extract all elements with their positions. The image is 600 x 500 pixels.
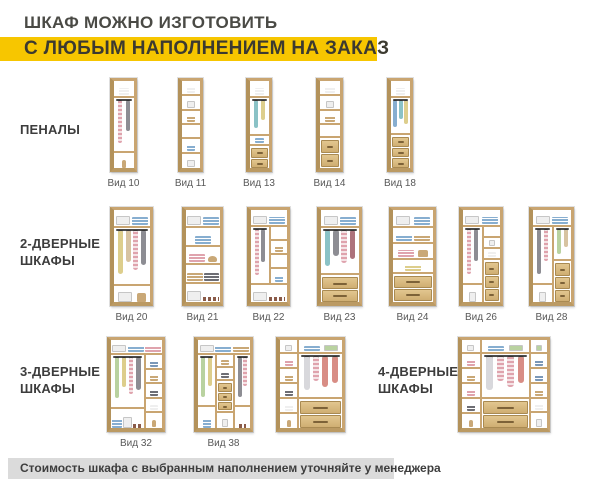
shelf-compartment bbox=[320, 111, 340, 126]
wardrobe-label: Вид 32 bbox=[120, 438, 152, 449]
folded-clothes-icon bbox=[195, 236, 211, 244]
box-icon bbox=[123, 417, 132, 428]
drawer-handle-icon bbox=[257, 163, 263, 165]
drawer bbox=[555, 290, 570, 302]
shelf-compartment bbox=[186, 265, 220, 283]
wardrobe-label: Вид 26 bbox=[465, 312, 497, 323]
shelf-compartment bbox=[280, 414, 297, 428]
wardrobe-interior bbox=[111, 340, 162, 428]
garment-icon bbox=[238, 358, 242, 397]
hanging-section bbox=[321, 229, 359, 275]
shelf-compartment bbox=[280, 369, 297, 384]
box-icon bbox=[467, 345, 474, 351]
folded-clothes-icon bbox=[535, 375, 542, 381]
garment-icon bbox=[333, 231, 338, 256]
wardrobe-diagram bbox=[387, 78, 413, 172]
folded-clothes-icon bbox=[215, 346, 231, 352]
wardrobe-column bbox=[233, 355, 250, 428]
garment-icon bbox=[261, 230, 265, 263]
split-section bbox=[462, 340, 547, 428]
folded-clothes-icon bbox=[221, 360, 228, 365]
hanging-section bbox=[198, 356, 215, 407]
garment-row bbox=[115, 231, 149, 281]
wardrobe-column bbox=[269, 227, 287, 284]
headline: ШКАФ МОЖНО ИЗГОТОВИТЬ bbox=[24, 13, 277, 33]
wardrobe-label: Вид 18 bbox=[384, 178, 416, 189]
wardrobe-column bbox=[462, 340, 480, 428]
shelf-compartment bbox=[186, 247, 220, 265]
shelf-compartment bbox=[271, 241, 287, 255]
folded-clothes-icon bbox=[275, 246, 282, 252]
shelf-compartment bbox=[114, 286, 150, 303]
shelf-compartment bbox=[462, 340, 480, 354]
shelf-compartment bbox=[182, 139, 200, 154]
garment-icon bbox=[332, 357, 338, 383]
box-icon bbox=[200, 345, 214, 352]
bag-icon bbox=[287, 420, 291, 427]
shelf-compartment bbox=[462, 354, 480, 369]
shelf-compartment bbox=[251, 210, 287, 227]
drawer-stack bbox=[320, 138, 340, 168]
wardrobe-label: Вид 20 bbox=[116, 312, 148, 323]
drawer bbox=[394, 276, 432, 288]
shelf-compartment bbox=[484, 249, 501, 260]
drawer-handle-icon bbox=[223, 406, 228, 408]
folded-clothes-icon bbox=[204, 273, 220, 281]
drawer bbox=[251, 148, 268, 157]
shelf-compartment bbox=[484, 227, 501, 238]
drawer bbox=[321, 154, 339, 167]
shelf-compartment bbox=[186, 210, 220, 228]
drawer-handle-icon bbox=[560, 269, 565, 271]
wardrobe-column bbox=[251, 227, 269, 284]
hanging-section bbox=[482, 355, 529, 399]
hanging-section bbox=[533, 228, 552, 285]
wardrobe-diagram bbox=[182, 207, 223, 306]
shelf-compartment bbox=[250, 136, 269, 146]
wardrobe-column bbox=[297, 340, 342, 428]
shelf-compartment bbox=[531, 340, 547, 354]
box-icon bbox=[187, 291, 201, 301]
hanging-section bbox=[251, 228, 269, 285]
hat-icon bbox=[208, 256, 217, 262]
folded-clothes-icon bbox=[128, 346, 144, 352]
split-section bbox=[463, 227, 500, 302]
wardrobe-interior bbox=[250, 81, 269, 168]
folded-clothes-icon bbox=[269, 217, 285, 224]
box-icon bbox=[324, 216, 338, 225]
shelf-compartment bbox=[393, 244, 433, 260]
folded-clothes-icon bbox=[285, 360, 293, 366]
drawer-handle-icon bbox=[489, 281, 494, 283]
box-icon bbox=[536, 419, 542, 427]
folded-clothes-icon bbox=[467, 375, 475, 381]
bag-icon bbox=[122, 160, 127, 168]
shelf-compartment bbox=[217, 368, 233, 381]
drawer bbox=[251, 159, 268, 168]
folded-clothes-icon bbox=[396, 88, 405, 95]
folded-clothes-icon bbox=[467, 390, 475, 396]
wardrobe-diagram bbox=[110, 207, 153, 306]
folded-clothes-icon bbox=[255, 138, 264, 143]
drawer-handle-icon bbox=[313, 407, 328, 409]
box-icon bbox=[465, 216, 479, 224]
drawer-stack bbox=[393, 274, 433, 302]
drawer bbox=[322, 277, 358, 289]
garment-row bbox=[392, 101, 409, 132]
wardrobe-diagram bbox=[194, 337, 253, 432]
shelf-compartment bbox=[186, 228, 220, 246]
shelf-compartment bbox=[182, 81, 200, 96]
shelf-compartment bbox=[462, 399, 480, 414]
shelf-compartment bbox=[146, 399, 162, 414]
garment-icon bbox=[564, 230, 568, 247]
garment-icon bbox=[518, 357, 525, 383]
folded-clothes-icon bbox=[396, 235, 412, 241]
box-icon bbox=[118, 292, 132, 302]
drawer-stack bbox=[299, 399, 342, 429]
wardrobe-interior bbox=[462, 340, 547, 428]
shelf-compartment bbox=[320, 81, 340, 96]
box-icon bbox=[112, 345, 126, 352]
drawer-handle-icon bbox=[406, 281, 420, 283]
garment-icon bbox=[136, 358, 141, 390]
hanging-section bbox=[111, 356, 144, 409]
drawer-stack bbox=[217, 381, 233, 413]
box-icon bbox=[187, 101, 194, 108]
drawer bbox=[392, 137, 409, 147]
folded-clothes-icon bbox=[203, 419, 211, 428]
garment-icon bbox=[341, 231, 346, 262]
folded-clothes-icon bbox=[150, 375, 157, 381]
wardrobe-diagram bbox=[110, 78, 137, 172]
drawer bbox=[321, 140, 339, 153]
shelf-compartment bbox=[531, 399, 547, 413]
drawer-handle-icon bbox=[313, 421, 328, 423]
shelf-compartment bbox=[393, 210, 433, 228]
wardrobe-diagram bbox=[529, 207, 574, 306]
garment-icon bbox=[304, 357, 310, 390]
split-section bbox=[280, 340, 342, 428]
wardrobe-diagram bbox=[107, 337, 165, 432]
folded-clothes-icon bbox=[325, 87, 334, 93]
wardrobe-label: Вид 13 bbox=[243, 178, 275, 189]
shoes-icon bbox=[269, 297, 285, 301]
drawer-handle-icon bbox=[489, 294, 494, 296]
garment-icon bbox=[133, 231, 138, 270]
shelf-compartment bbox=[146, 413, 162, 428]
drawer bbox=[483, 401, 528, 414]
shelf-compartment bbox=[280, 354, 297, 369]
garment-icon bbox=[557, 230, 561, 254]
shelf-compartment bbox=[217, 355, 233, 368]
wardrobe-label: Вид 10 bbox=[108, 178, 140, 189]
shelf-compartment bbox=[299, 340, 342, 354]
folded-clothes-icon bbox=[145, 346, 161, 352]
drawer-handle-icon bbox=[560, 282, 565, 284]
folded-clothes-icon bbox=[482, 217, 498, 224]
hanging-section bbox=[554, 228, 571, 262]
hanging-section bbox=[114, 229, 150, 285]
hanging-section bbox=[235, 356, 250, 407]
wardrobe-interior bbox=[114, 81, 134, 168]
shelf-compartment bbox=[198, 407, 215, 429]
folded-clothes-icon bbox=[112, 419, 122, 428]
box-icon bbox=[539, 292, 546, 302]
shelf-compartment bbox=[482, 340, 529, 354]
shelf-compartment bbox=[531, 413, 547, 428]
folded-clothes-icon bbox=[405, 265, 421, 271]
box-icon bbox=[489, 240, 495, 246]
wardrobe-column bbox=[463, 227, 482, 302]
garment-row bbox=[112, 358, 143, 405]
garment-row bbox=[322, 231, 358, 271]
drawer-stack bbox=[554, 261, 571, 302]
shelf-compartment bbox=[531, 384, 547, 399]
garment-icon bbox=[322, 357, 328, 387]
folded-clothes-icon bbox=[203, 217, 219, 225]
shelf-compartment bbox=[114, 210, 150, 228]
box-icon bbox=[253, 292, 267, 301]
wardrobe-column bbox=[482, 227, 501, 302]
box-icon bbox=[536, 216, 550, 224]
drawer-stack bbox=[250, 146, 269, 169]
catalog-poster: ШКАФ МОЖНО ИЗГОТОВИТЬ С ЛЮБЫМ НАПОЛНЕНИЕ… bbox=[0, 0, 600, 500]
folded-clothes-icon bbox=[187, 273, 203, 281]
garment-icon bbox=[122, 358, 127, 387]
folded-clothes-icon bbox=[189, 254, 205, 262]
folded-clothes-icon bbox=[187, 87, 195, 93]
hanging-section bbox=[114, 99, 134, 153]
folded-clothes-icon bbox=[275, 276, 282, 283]
folded-clothes-icon bbox=[304, 346, 320, 352]
shelf-compartment bbox=[280, 399, 297, 414]
drawer-handle-icon bbox=[333, 295, 347, 297]
folded-clothes-icon bbox=[488, 252, 496, 257]
wardrobe-interior bbox=[114, 210, 150, 302]
wardrobe-column bbox=[529, 340, 547, 428]
box-icon bbox=[396, 216, 410, 225]
section-label-3-door: 3-ДВЕРНЫЕ ШКАФЫ bbox=[20, 364, 100, 398]
garment-row bbox=[252, 230, 268, 283]
bag-icon bbox=[469, 420, 473, 427]
shelf-compartment bbox=[531, 354, 547, 369]
garment-icon bbox=[467, 230, 471, 274]
wardrobe-interior bbox=[391, 81, 410, 168]
box-icon bbox=[222, 419, 228, 427]
shelf-compartment bbox=[182, 125, 200, 139]
folded-clothes-icon bbox=[255, 88, 264, 95]
wardrobe-label: Вид 14 bbox=[314, 178, 346, 189]
garment-icon bbox=[507, 357, 514, 387]
wardrobe-column bbox=[144, 355, 162, 428]
wardrobe-diagram bbox=[316, 78, 343, 172]
wardrobe-label: Вид 11 bbox=[175, 178, 206, 189]
wardrobe-interior bbox=[182, 81, 200, 168]
drawer-handle-icon bbox=[223, 387, 228, 389]
drawer bbox=[218, 393, 232, 401]
box-icon bbox=[253, 216, 267, 224]
wardrobe-label: Вид 38 bbox=[208, 438, 240, 449]
shelf-compartment bbox=[280, 384, 297, 399]
folded-clothes-icon bbox=[340, 217, 356, 225]
shelf-compartment bbox=[235, 407, 250, 429]
garment-icon bbox=[201, 358, 205, 397]
drawer-handle-icon bbox=[257, 152, 263, 154]
garment-row bbox=[534, 230, 551, 281]
garment-icon bbox=[325, 231, 330, 265]
drawer-handle-icon bbox=[398, 152, 404, 154]
folded-clothes-icon bbox=[398, 250, 414, 256]
folded-clothes-icon bbox=[285, 405, 293, 411]
shelf-compartment bbox=[251, 285, 287, 302]
garment-icon bbox=[141, 231, 146, 265]
wardrobe-diagram bbox=[247, 207, 290, 306]
drawer bbox=[322, 290, 358, 302]
wardrobe-interior bbox=[321, 210, 359, 302]
shoes-icon bbox=[239, 424, 246, 428]
garment-icon bbox=[208, 358, 212, 386]
hanging-section bbox=[391, 99, 410, 136]
wardrobe-column bbox=[215, 355, 233, 428]
drawer-stack bbox=[482, 399, 529, 429]
garment-row bbox=[483, 357, 528, 395]
wardrobe-interior bbox=[280, 340, 342, 428]
box-icon bbox=[509, 345, 523, 351]
garment-icon bbox=[544, 230, 548, 262]
box-icon bbox=[326, 101, 334, 108]
folded-clothes-icon bbox=[488, 346, 504, 352]
garment-icon bbox=[243, 358, 247, 386]
shelf-compartment bbox=[391, 81, 410, 98]
shelf-compartment bbox=[146, 384, 162, 399]
headline-highlight: С ЛЮБЫМ НАПОЛНЕНИЕМ НА ЗАКАЗ bbox=[0, 37, 377, 61]
garment-icon bbox=[254, 101, 258, 128]
bag-icon bbox=[137, 293, 146, 302]
drawer-handle-icon bbox=[406, 294, 420, 296]
shelf-compartment bbox=[484, 238, 501, 249]
split-section bbox=[251, 227, 287, 286]
garment-icon bbox=[404, 101, 408, 125]
shelf-compartment bbox=[186, 284, 220, 302]
folded-clothes-icon bbox=[325, 116, 334, 122]
shelf-compartment bbox=[111, 340, 162, 355]
drawer-handle-icon bbox=[398, 163, 404, 165]
folded-clothes-icon bbox=[150, 361, 157, 367]
garment-icon bbox=[313, 357, 319, 381]
garment-icon bbox=[474, 230, 478, 262]
shelf-compartment bbox=[146, 355, 162, 370]
wardrobe-interior bbox=[186, 210, 220, 302]
folded-clothes-icon bbox=[150, 405, 157, 411]
drawer bbox=[218, 402, 232, 410]
drawer-handle-icon bbox=[489, 268, 494, 270]
folded-clothes-icon bbox=[119, 88, 128, 95]
shoes-icon bbox=[133, 424, 143, 428]
wardrobe-label: Вид 28 bbox=[536, 312, 568, 323]
section-label-4-door: 4-ДВЕРНЫЕ ШКАФЫ bbox=[378, 364, 458, 398]
folded-clothes-icon bbox=[285, 375, 293, 381]
wardrobe-diagram bbox=[317, 207, 362, 306]
garment-icon bbox=[350, 231, 355, 258]
folded-clothes-icon bbox=[535, 390, 542, 396]
drawer-handle-icon bbox=[223, 396, 228, 398]
garment-icon bbox=[486, 357, 493, 390]
folded-clothes-icon bbox=[552, 217, 568, 224]
wardrobe-diagram bbox=[389, 207, 436, 306]
split-section bbox=[533, 227, 571, 302]
shelf-compartment bbox=[114, 153, 134, 169]
folded-clothes-icon bbox=[221, 373, 228, 378]
wardrobe-diagram bbox=[246, 78, 272, 172]
wardrobe-interior bbox=[320, 81, 340, 168]
shelf-compartment bbox=[533, 210, 571, 227]
shelf-compartment bbox=[182, 111, 200, 126]
wardrobe-column bbox=[552, 227, 571, 302]
drawer-handle-icon bbox=[327, 160, 333, 162]
garment-icon bbox=[399, 101, 403, 120]
shelf-compartment bbox=[462, 414, 480, 428]
drawer-handle-icon bbox=[327, 146, 333, 148]
wardrobe-interior bbox=[533, 210, 571, 302]
shelf-compartment bbox=[111, 409, 144, 429]
box-icon bbox=[285, 345, 292, 351]
wardrobe-interior bbox=[251, 210, 287, 302]
bag-icon bbox=[152, 420, 156, 427]
folded-clothes-icon bbox=[187, 116, 195, 122]
shelf-compartment bbox=[320, 96, 340, 111]
drawer bbox=[300, 401, 341, 414]
wardrobe-diagram bbox=[458, 337, 550, 432]
shelf-compartment bbox=[271, 255, 287, 269]
shelf-compartment bbox=[182, 96, 200, 111]
shelf-compartment bbox=[182, 154, 200, 168]
garment-icon bbox=[129, 358, 134, 394]
shelf-compartment bbox=[462, 384, 480, 399]
garment-icon bbox=[115, 358, 120, 398]
garment-row bbox=[555, 230, 570, 258]
wardrobe-column bbox=[198, 355, 215, 428]
folded-clothes-icon bbox=[414, 235, 430, 241]
folded-clothes-icon bbox=[414, 217, 430, 225]
hanging-section bbox=[250, 99, 269, 136]
box-icon bbox=[187, 216, 201, 225]
shelf-compartment bbox=[280, 340, 297, 354]
garment-icon bbox=[255, 230, 259, 275]
shelf-compartment bbox=[271, 269, 287, 283]
shelf-compartment bbox=[146, 370, 162, 385]
garment-row bbox=[236, 358, 249, 403]
drawer-handle-icon bbox=[497, 407, 514, 409]
shelf-compartment bbox=[393, 260, 433, 275]
garment-row bbox=[199, 358, 214, 403]
folded-clothes-icon bbox=[535, 404, 542, 410]
split-section bbox=[198, 355, 250, 428]
wardrobe-label: Вид 21 bbox=[187, 312, 219, 323]
folded-clothes-icon bbox=[467, 360, 475, 366]
wardrobe-interior bbox=[393, 210, 433, 302]
wardrobe-diagram bbox=[276, 337, 345, 432]
wardrobe-column bbox=[280, 340, 297, 428]
shelf-compartment bbox=[531, 369, 547, 384]
split-section bbox=[111, 355, 162, 428]
wardrobe-label: Вид 24 bbox=[397, 312, 429, 323]
drawer-handle-icon bbox=[497, 421, 514, 423]
garment-icon bbox=[126, 101, 130, 131]
shelf-compartment bbox=[320, 125, 340, 138]
box-icon bbox=[324, 345, 338, 351]
folded-clothes-icon bbox=[187, 145, 195, 151]
